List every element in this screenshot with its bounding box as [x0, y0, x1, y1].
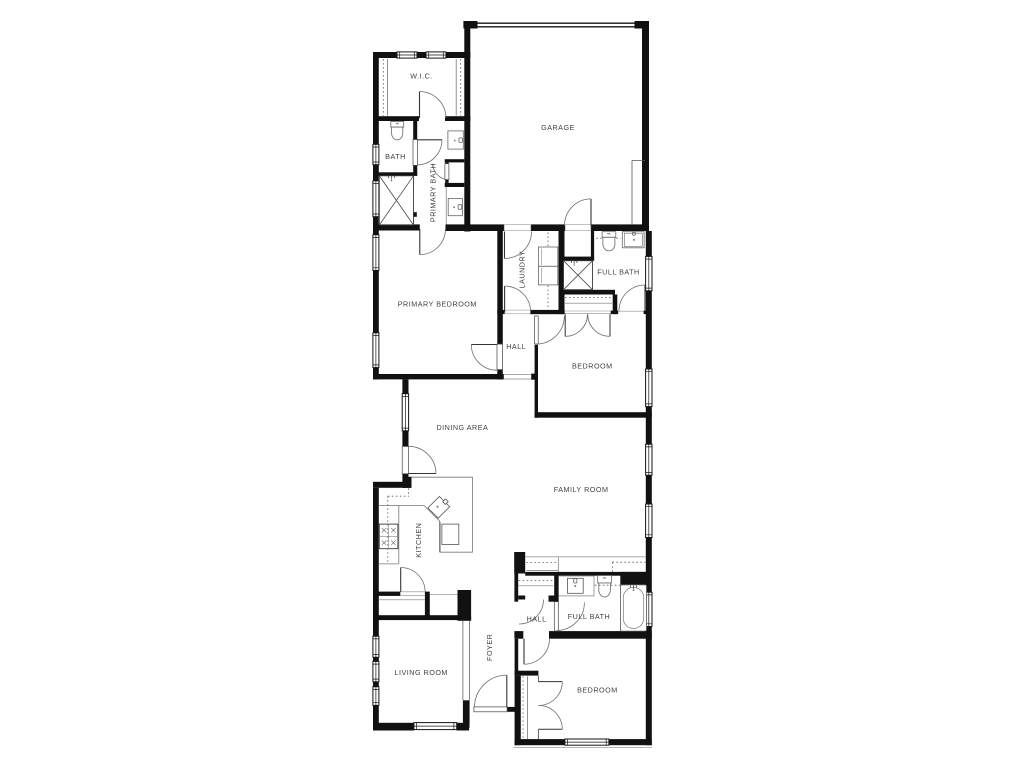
- svg-text:LAUNDRY: LAUNDRY: [517, 251, 526, 289]
- svg-text:GARAGE: GARAGE: [541, 123, 575, 132]
- svg-text:HALL: HALL: [527, 615, 547, 624]
- svg-text:PRIMARY BEDROOM: PRIMARY BEDROOM: [398, 300, 477, 309]
- svg-text:BEDROOM: BEDROOM: [572, 362, 613, 371]
- svg-text:HALL: HALL: [506, 342, 526, 351]
- svg-text:W.I.C.: W.I.C.: [410, 72, 433, 81]
- svg-text:FOYER: FOYER: [485, 634, 494, 661]
- svg-text:BEDROOM: BEDROOM: [577, 685, 618, 694]
- svg-text:DINING AREA: DINING AREA: [436, 423, 488, 432]
- svg-text:FULL BATH: FULL BATH: [568, 612, 610, 621]
- svg-text:KITCHEN: KITCHEN: [414, 523, 423, 558]
- svg-text:BATH: BATH: [385, 152, 406, 161]
- svg-text:FAMILY ROOM: FAMILY ROOM: [554, 485, 609, 494]
- svg-text:PRIMARY BATH: PRIMARY BATH: [429, 163, 438, 222]
- svg-text:LIVING ROOM: LIVING ROOM: [394, 668, 447, 677]
- svg-text:FULL BATH: FULL BATH: [597, 268, 639, 277]
